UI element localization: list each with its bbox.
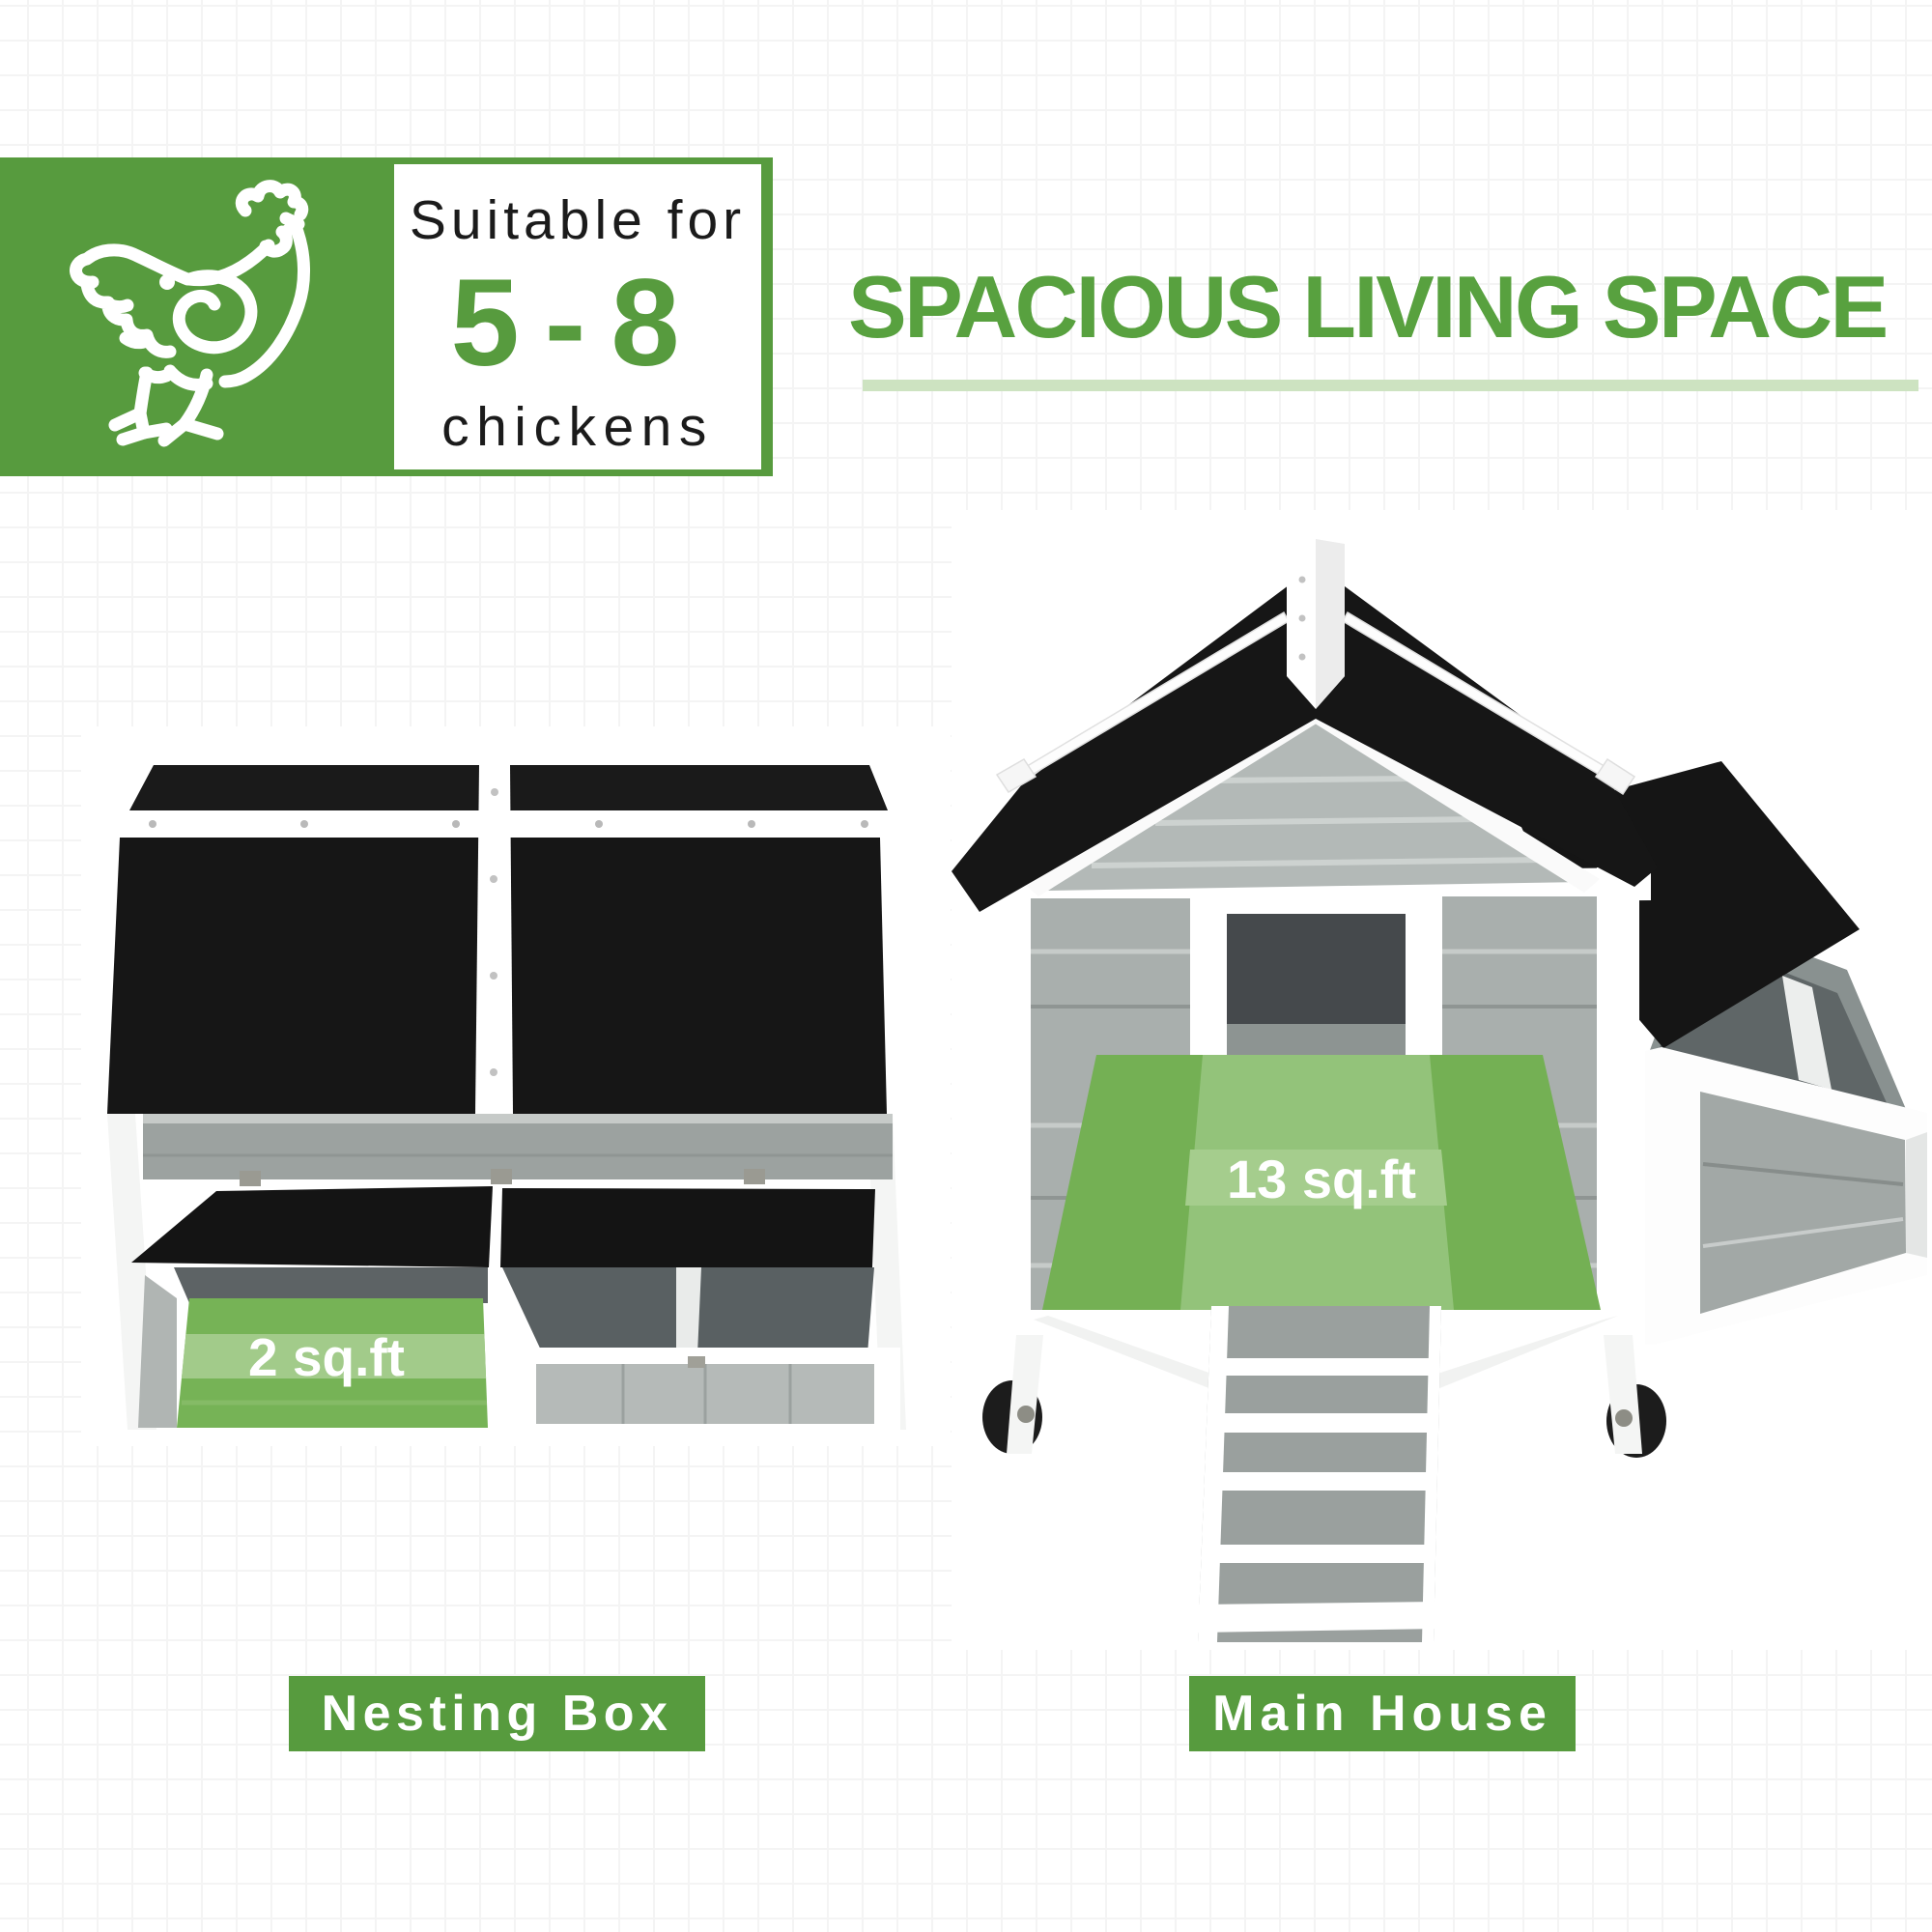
svg-text:2 sq.ft: 2 sq.ft [248, 1327, 405, 1387]
svg-text:13 sq.ft: 13 sq.ft [1227, 1149, 1416, 1209]
